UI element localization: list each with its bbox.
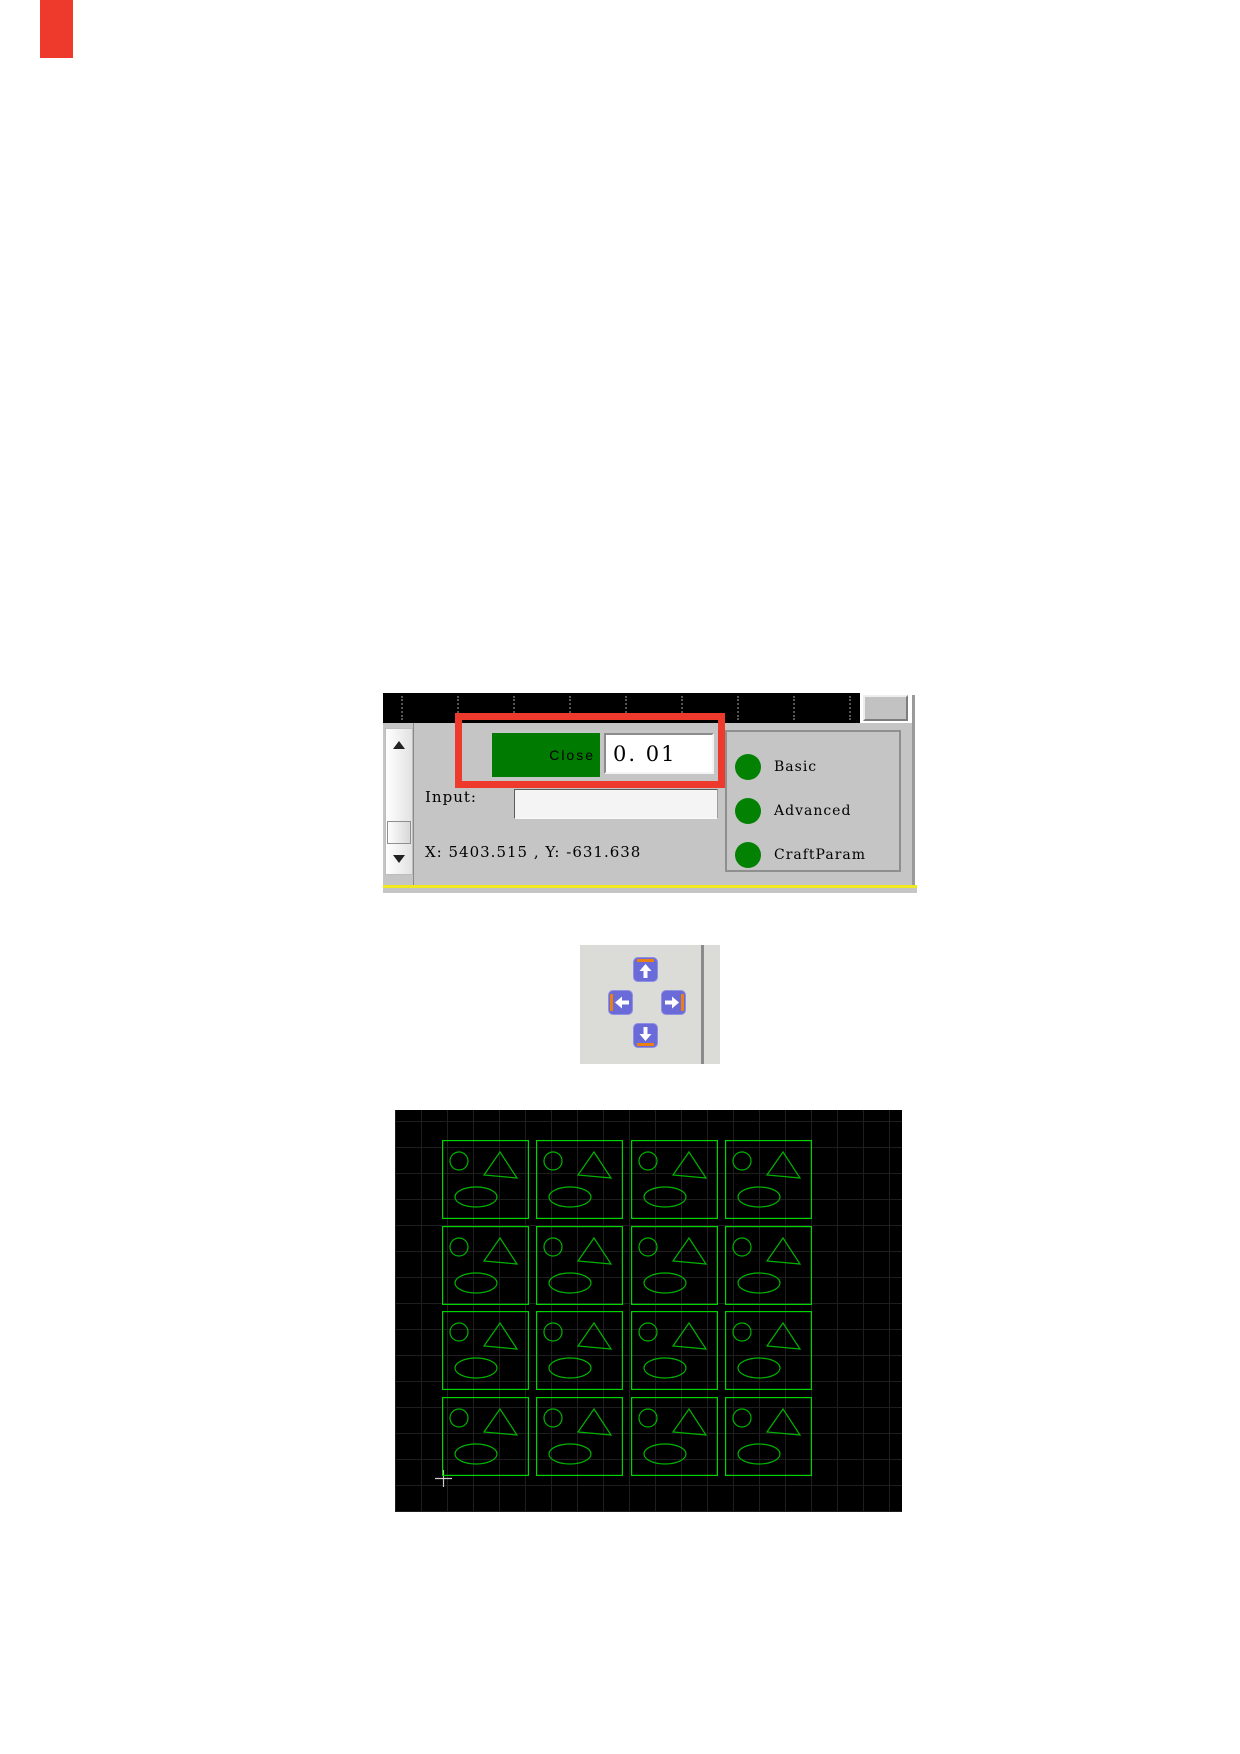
radio-dot-icon[interactable] bbox=[735, 798, 761, 824]
part-cell bbox=[442, 1140, 529, 1219]
right-arrow-icon bbox=[662, 991, 685, 1014]
input-label: Input: bbox=[425, 788, 477, 806]
part-cell bbox=[631, 1140, 718, 1219]
document-page: Close 0. 01 Input: X: 5403.515 , Y: -631… bbox=[0, 0, 1240, 1754]
drawing-canvas[interactable] bbox=[395, 1110, 902, 1512]
radio-option-craftparam[interactable]: CraftParam bbox=[735, 833, 899, 877]
part-cell bbox=[725, 1226, 812, 1305]
part-cell bbox=[631, 1311, 718, 1390]
radio-label: CraftParam bbox=[774, 847, 866, 863]
ruler-tick bbox=[849, 696, 851, 720]
part-cell bbox=[442, 1397, 529, 1476]
ruler-tick bbox=[401, 696, 403, 720]
part-cell bbox=[725, 1397, 812, 1476]
part-cell bbox=[536, 1140, 623, 1219]
move-left-button[interactable] bbox=[608, 990, 633, 1015]
move-right-button[interactable] bbox=[661, 990, 686, 1015]
nav-pad bbox=[580, 945, 720, 1064]
scrollbar-separator bbox=[413, 723, 414, 885]
coordinates-readout: X: 5403.515 , Y: -631.638 bbox=[425, 843, 641, 861]
move-up-button[interactable] bbox=[633, 957, 658, 982]
radio-option-advanced[interactable]: Advanced bbox=[735, 789, 899, 833]
panel-right-border bbox=[912, 695, 915, 885]
radio-dot-icon[interactable] bbox=[735, 754, 761, 780]
part-cell bbox=[536, 1311, 623, 1390]
left-arrow-icon bbox=[609, 991, 632, 1014]
radio-label: Advanced bbox=[774, 803, 851, 819]
scroll-down-icon[interactable] bbox=[393, 855, 405, 863]
part-cell bbox=[536, 1226, 623, 1305]
part-cell bbox=[442, 1226, 529, 1305]
radio-dot-icon[interactable] bbox=[735, 842, 761, 868]
ruler-corner-button[interactable] bbox=[863, 695, 908, 721]
part-cell bbox=[725, 1140, 812, 1219]
panel-bottom-strip bbox=[383, 888, 917, 893]
scroll-up-icon[interactable] bbox=[393, 741, 405, 749]
scrollbar-thumb[interactable] bbox=[387, 821, 411, 844]
vertical-scrollbar[interactable] bbox=[385, 728, 413, 875]
mode-panel: BasicAdvancedCraftParam bbox=[725, 730, 901, 872]
move-down-button[interactable] bbox=[633, 1023, 658, 1048]
ruler-tick bbox=[793, 696, 795, 720]
parameter-panel: Close 0. 01 Input: X: 5403.515 , Y: -631… bbox=[383, 693, 917, 893]
part-cell bbox=[442, 1311, 529, 1390]
down-arrow-icon bbox=[634, 1024, 657, 1047]
ruler-tick bbox=[737, 696, 739, 720]
part-cell bbox=[536, 1397, 623, 1476]
nav-pad-border bbox=[701, 945, 704, 1064]
part-cell bbox=[631, 1226, 718, 1305]
command-input[interactable] bbox=[514, 789, 718, 819]
radio-label: Basic bbox=[774, 759, 817, 775]
highlight-annotation bbox=[455, 713, 725, 788]
red-marker bbox=[40, 0, 73, 58]
part-cell bbox=[725, 1311, 812, 1390]
part-cell bbox=[631, 1397, 718, 1476]
radio-option-basic[interactable]: Basic bbox=[735, 745, 899, 789]
up-arrow-icon bbox=[634, 958, 657, 981]
